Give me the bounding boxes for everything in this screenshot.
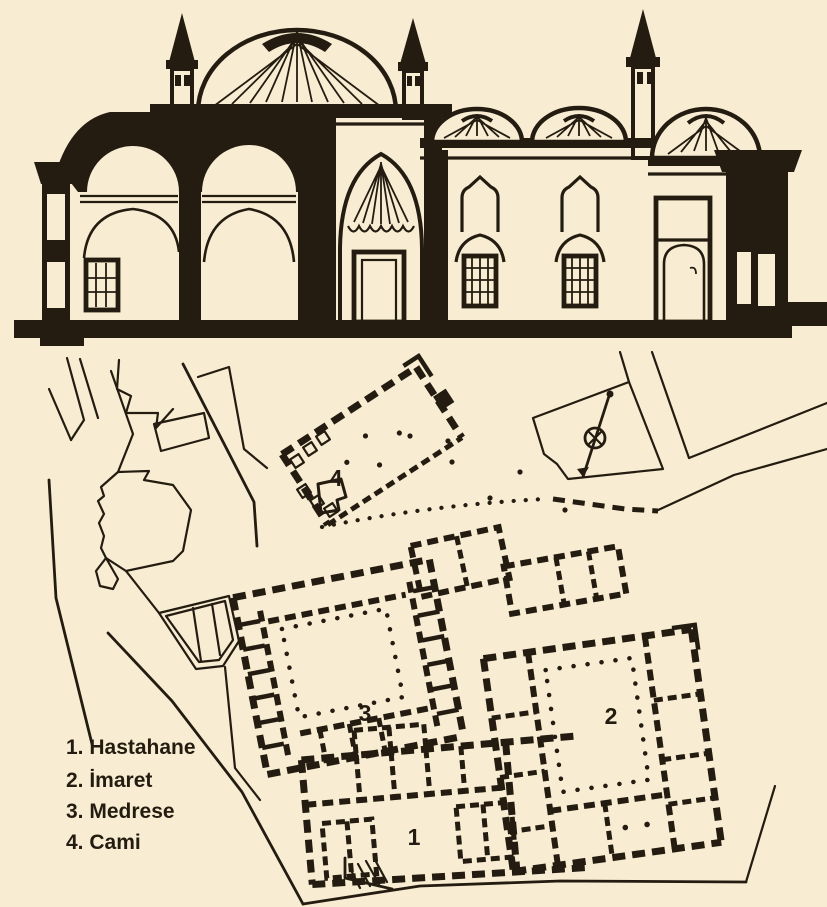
building-label-medrese: 3 bbox=[359, 700, 372, 726]
minaret-center bbox=[398, 18, 428, 118]
dome-cornice bbox=[150, 104, 452, 118]
muqarnas-scallops bbox=[348, 226, 414, 232]
grilled-window bbox=[86, 260, 118, 310]
annex-rooms bbox=[411, 527, 627, 613]
site-plan: 1 2 3 4 1. Hastahane 2. İmaret 3. Medres… bbox=[49, 352, 827, 904]
irregular-plot bbox=[98, 471, 191, 571]
building-medrese bbox=[233, 560, 464, 775]
facade-window bbox=[556, 177, 604, 306]
scattered-dots bbox=[407, 433, 567, 512]
bay-interior bbox=[202, 196, 296, 262]
left-wing-section bbox=[34, 106, 345, 322]
dashed-street-line bbox=[553, 499, 658, 511]
right-wing-elevation bbox=[420, 108, 802, 322]
arcade-pier bbox=[179, 190, 201, 322]
building-imaret bbox=[483, 625, 725, 872]
legend: 1. Hastahane 2. İmaret 3. Medrese 4. Cam… bbox=[66, 736, 196, 854]
legend-item: 3. Medrese bbox=[66, 800, 175, 823]
small-dome bbox=[532, 108, 626, 142]
building-label-cami: 4 bbox=[330, 465, 343, 491]
north-arrow bbox=[577, 391, 614, 478]
bay-interior bbox=[80, 196, 179, 310]
dotted-street-line bbox=[322, 499, 545, 527]
minaret-right bbox=[626, 9, 660, 158]
legend-item: 1. Hastahane bbox=[66, 736, 196, 759]
minaret-left bbox=[166, 13, 198, 119]
section-elevation bbox=[14, 9, 827, 346]
corner-pier bbox=[714, 150, 802, 322]
facade-door bbox=[656, 198, 710, 322]
building-label-imaret: 2 bbox=[605, 703, 618, 729]
building-labels: 1 2 3 4 bbox=[330, 465, 618, 850]
courtyard-colonnade bbox=[546, 658, 649, 792]
facade-window bbox=[456, 177, 504, 306]
architectural-figure: 1 2 3 4 1. Hastahane 2. İmaret 3. Medres… bbox=[0, 0, 827, 907]
legend-item: 2. İmaret bbox=[66, 769, 152, 792]
drawing-canvas: 1 2 3 4 1. Hastahane 2. İmaret 3. Medres… bbox=[0, 0, 827, 907]
portal-jamb bbox=[318, 116, 336, 322]
left-pier bbox=[34, 162, 80, 322]
legend-item: 4. Cami bbox=[66, 831, 141, 854]
walled-garden-plot bbox=[159, 596, 239, 669]
courtyard-colonnade bbox=[282, 609, 403, 718]
building-label-hastahane: 1 bbox=[408, 824, 421, 850]
